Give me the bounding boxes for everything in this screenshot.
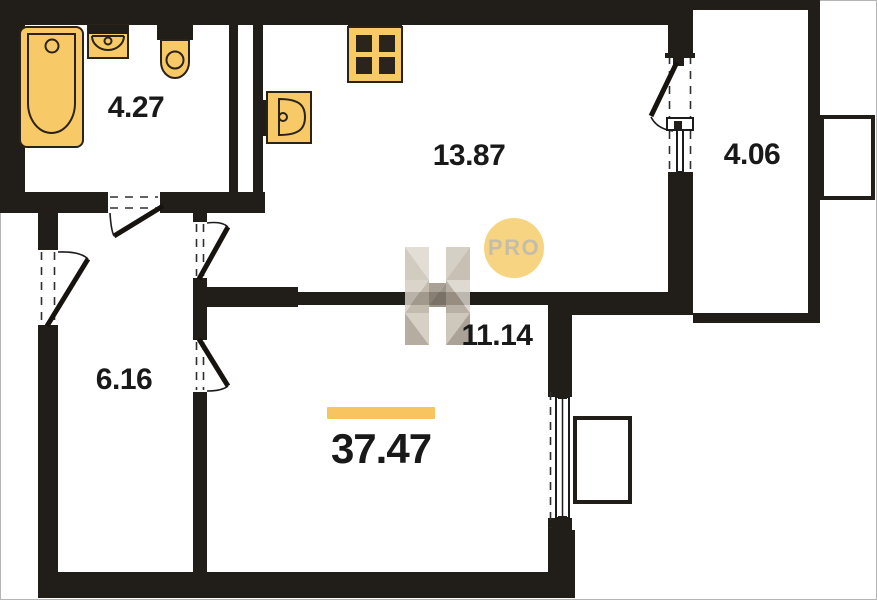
wall-balcony-pier-top bbox=[668, 25, 693, 53]
toilet-icon bbox=[157, 25, 193, 78]
brand-h-watermark bbox=[405, 247, 470, 345]
total-area-label: 37.47 bbox=[331, 425, 431, 473]
floor-plan: 4.27 13.87 4.06 6.16 11.14 37.47 PRO bbox=[0, 0, 877, 600]
wall-hall-divider-e bbox=[193, 392, 207, 402]
bathroom-door bbox=[110, 197, 163, 236]
balcony-glazing bbox=[651, 53, 695, 182]
stove-icon bbox=[348, 15, 402, 82]
wall-living-right-upper bbox=[548, 292, 572, 390]
wall-bathroom-bottom-left bbox=[0, 192, 108, 213]
total-area-accent-bar bbox=[327, 407, 435, 419]
kitchen-door bbox=[197, 223, 229, 280]
room-area-living: 11.14 bbox=[462, 319, 533, 353]
wall-balcony-right bbox=[808, 10, 820, 323]
room-area-bathroom: 4.27 bbox=[108, 91, 164, 125]
wall-balcony-bottom bbox=[693, 313, 820, 323]
room-area-kitchen: 13.87 bbox=[433, 139, 506, 173]
living-window-tick-bottom bbox=[558, 516, 567, 524]
balcony-window-tick bbox=[674, 121, 682, 129]
wall-top bbox=[0, 0, 693, 25]
wall-balcony-pier-bottom bbox=[668, 182, 693, 292]
wall-bathroom-bottom-right bbox=[160, 192, 265, 213]
bathtub-icon bbox=[20, 27, 83, 147]
room-area-hallway: 6.16 bbox=[96, 363, 152, 397]
wall-hall-divider-a bbox=[193, 212, 207, 222]
wall-left-lower bbox=[38, 325, 58, 598]
floor-plan-drawing bbox=[0, 0, 877, 600]
room-area-balcony: 4.06 bbox=[724, 138, 780, 172]
living-window-tick-top bbox=[558, 391, 567, 399]
balcony-door-leaf bbox=[651, 62, 677, 116]
wall-hall-divider-f bbox=[193, 402, 207, 572]
living-door bbox=[197, 339, 229, 391]
washbasin-icon bbox=[88, 25, 128, 58]
entrance-door-arc bbox=[58, 252, 88, 259]
living-window bbox=[551, 391, 570, 528]
entrance-door-leaf bbox=[47, 259, 88, 326]
entrance-door bbox=[42, 252, 89, 326]
balcony-window-mullion bbox=[677, 130, 683, 172]
living-door-arc bbox=[207, 386, 228, 391]
wall-living-right-lower bbox=[548, 530, 575, 578]
kitchen-door-leaf bbox=[199, 227, 228, 279]
kitchen-sink-icon bbox=[262, 92, 311, 143]
ac-basket-top-right bbox=[822, 117, 873, 198]
wall-hall-divider-b bbox=[193, 278, 207, 290]
bathroom-door-leaf bbox=[114, 206, 163, 236]
balcony-door-lintel bbox=[665, 53, 695, 58]
wall-partition-strip-2 bbox=[253, 25, 263, 195]
wall-left-upper bbox=[38, 213, 58, 250]
wall-divider-thick bbox=[193, 287, 298, 307]
kitchen-door-arc bbox=[207, 223, 228, 228]
ac-basket-bottom-right bbox=[575, 418, 630, 502]
balcony-window-post bbox=[668, 172, 693, 182]
bathroom-door-arc bbox=[110, 213, 114, 236]
wall-partition-strip-1 bbox=[229, 25, 238, 195]
pro-badge: PRO bbox=[484, 218, 544, 278]
wall-bottom bbox=[38, 572, 575, 598]
pro-badge-label: PRO bbox=[488, 235, 540, 261]
wall-hall-divider-c bbox=[193, 290, 207, 330]
wall-balcony-top bbox=[693, 0, 820, 10]
